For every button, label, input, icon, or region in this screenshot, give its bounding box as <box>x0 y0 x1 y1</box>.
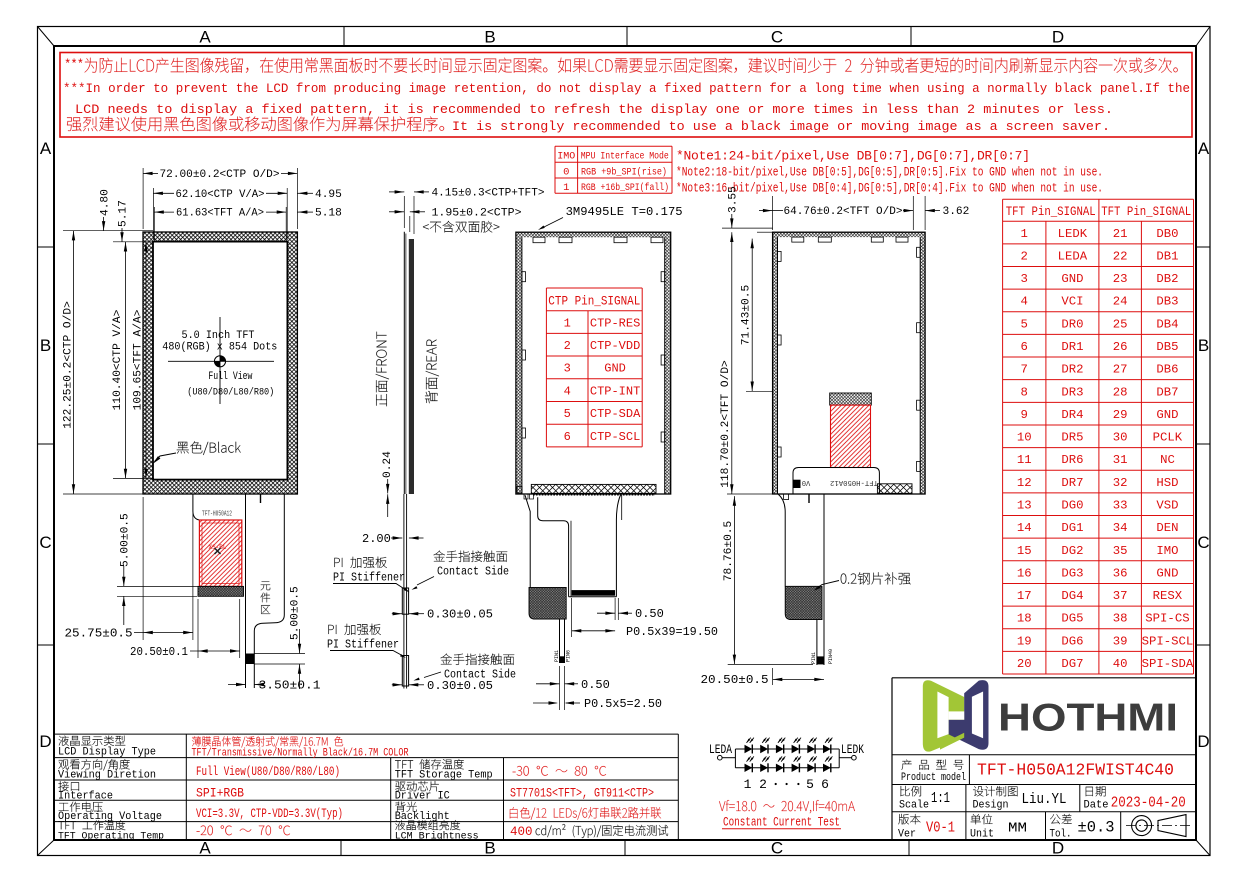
svg-text:1.95±0.2<CTP>: 1.95±0.2<CTP> <box>432 207 522 219</box>
svg-text:ST7701S<TFT>, GT911<CTP>: ST7701S<TFT>, GT911<CTP> <box>510 787 654 801</box>
svg-text:PIN1: PIN1 <box>811 652 817 664</box>
svg-text:16: 16 <box>1017 566 1032 580</box>
svg-text:A: A <box>1198 139 1210 158</box>
svg-text:Constant Current Test: Constant Current Test <box>723 815 840 830</box>
svg-text:3M9495LE T=0.175: 3M9495LE T=0.175 <box>566 205 683 219</box>
svg-text:61.63<TFT A/A>: 61.63<TFT A/A> <box>176 208 264 220</box>
svg-text:A: A <box>199 839 211 858</box>
svg-text:RGB +9b_SPI(rise): RGB +9b_SPI(rise) <box>581 167 667 179</box>
svg-text:DB6: DB6 <box>1156 363 1178 377</box>
svg-text:Full View: Full View <box>208 371 252 383</box>
svg-text:*Note3:16-bit/pixel,Use DB[0:4: *Note3:16-bit/pixel,Use DB[0:4],DG[0:5],… <box>676 181 1103 196</box>
svg-text:30: 30 <box>1113 431 1128 445</box>
svg-text:20.50±0.1: 20.50±0.1 <box>130 645 188 659</box>
svg-text:2: 2 <box>759 777 767 792</box>
svg-text:6: 6 <box>564 430 571 444</box>
svg-text:0: 0 <box>563 167 569 179</box>
svg-text:1: 1 <box>1021 227 1028 241</box>
svg-text:1: 1 <box>744 777 752 792</box>
svg-text:33: 33 <box>1113 499 1128 513</box>
svg-text:LEDK: LEDK <box>841 742 864 757</box>
svg-text:Interface: Interface <box>58 791 113 803</box>
svg-text:Contact Side: Contact Side <box>437 566 509 579</box>
svg-text:Driver IC: Driver IC <box>395 791 450 803</box>
svg-text:PI Stiffener: PI Stiffener <box>327 639 399 652</box>
svg-text:5.00±0.5: 5.00±0.5 <box>120 513 132 567</box>
svg-text:CTP-INT: CTP-INT <box>590 384 640 398</box>
svg-text:122.25±0.2<CTP O/D>: 122.25±0.2<CTP O/D> <box>63 301 75 429</box>
svg-text:DR7: DR7 <box>1061 476 1083 490</box>
svg-text:40: 40 <box>1113 657 1128 671</box>
svg-text:GND: GND <box>1061 272 1083 286</box>
svg-text:DEN: DEN <box>1156 521 1178 535</box>
svg-text:5: 5 <box>564 407 571 421</box>
svg-text:Unit: Unit <box>970 829 994 841</box>
svg-text:LEDA: LEDA <box>709 742 732 757</box>
svg-text:DB7: DB7 <box>1156 385 1178 399</box>
svg-text:0.30±0.05: 0.30±0.05 <box>427 609 493 622</box>
svg-text:Liu.YL: Liu.YL <box>1022 791 1067 808</box>
svg-text:SPI-CS: SPI-CS <box>1145 612 1189 626</box>
svg-text:PIN1: PIN1 <box>554 650 560 662</box>
svg-text:TFT-H050A12: TFT-H050A12 <box>202 511 232 519</box>
svg-text:19: 19 <box>1017 634 1032 648</box>
svg-text:Date: Date <box>1084 800 1109 812</box>
svg-text:DR0: DR0 <box>1061 317 1083 331</box>
svg-text:400: 400 <box>510 825 533 839</box>
svg-text:2.00: 2.00 <box>362 532 391 546</box>
svg-text:LCM Brightness: LCM Brightness <box>395 830 479 842</box>
svg-text:TFT-H050A12: TFT-H050A12 <box>830 478 878 486</box>
svg-text:3: 3 <box>1021 272 1028 286</box>
svg-text:GND: GND <box>604 362 626 376</box>
svg-text:0.50: 0.50 <box>581 678 610 692</box>
svg-text:8: 8 <box>1021 385 1028 399</box>
svg-text:Product model: Product model <box>901 772 966 784</box>
svg-text:Scale: Scale <box>899 800 929 812</box>
svg-text:GND: GND <box>1156 566 1178 580</box>
svg-text:DG7: DG7 <box>1061 657 1083 671</box>
svg-text:IMO: IMO <box>1156 544 1178 558</box>
svg-text:38: 38 <box>1113 612 1128 626</box>
svg-text:TFT Pin_SIGNAL: TFT Pin_SIGNAL <box>1101 205 1191 219</box>
svg-text:CTP-VDD: CTP-VDD <box>590 339 640 353</box>
svg-text:36: 36 <box>1113 566 1128 580</box>
svg-text:DG5: DG5 <box>1061 612 1083 626</box>
svg-text:109.65<TFT A/A>: 109.65<TFT A/A> <box>133 309 145 410</box>
svg-text:14: 14 <box>1017 521 1032 535</box>
svg-text:LCD needs to display a fixed p: LCD needs to display a fixed pattern, it… <box>75 102 1113 117</box>
svg-text:37: 37 <box>1113 589 1128 603</box>
svg-text:VCI: VCI <box>1061 295 1083 309</box>
svg-text:CTP-SCL: CTP-SCL <box>590 430 640 444</box>
svg-text:25.75±0.5: 25.75±0.5 <box>65 627 133 641</box>
svg-text:DR5: DR5 <box>1061 431 1083 445</box>
svg-text:C: C <box>1197 533 1209 552</box>
svg-text:5: 5 <box>1021 317 1028 331</box>
svg-text:Design: Design <box>973 800 1009 812</box>
svg-text:Tol.: Tol. <box>1050 829 1072 841</box>
svg-text:HSD: HSD <box>1156 476 1178 490</box>
svg-text:11: 11 <box>1017 453 1032 467</box>
svg-text:6: 6 <box>1021 340 1028 354</box>
svg-text:28: 28 <box>1113 385 1128 399</box>
svg-text:1: 1 <box>563 182 569 194</box>
svg-text:MM: MM <box>1008 821 1027 837</box>
svg-text:0.50: 0.50 <box>635 607 664 621</box>
svg-text:Full View(U80/D80/R80/L80): Full View(U80/D80/R80/L80) <box>196 764 340 779</box>
svg-text:*Note2:18-bit/pixel,Use DB[0:5: *Note2:18-bit/pixel,Use DB[0:5],DG[0:5],… <box>676 165 1103 180</box>
svg-text:DG3: DG3 <box>1061 566 1083 580</box>
svg-text:78.76±0.5: 78.76±0.5 <box>723 521 735 581</box>
svg-text:1:1: 1:1 <box>931 790 950 807</box>
svg-text:*Note1:24-bit/pixel,Use DB[0:7: *Note1:24-bit/pixel,Use DB[0:7],DG[0:7],… <box>676 149 1030 164</box>
svg-text:0.30±0.05: 0.30±0.05 <box>427 680 493 693</box>
svg-text:CTP-RES: CTP-RES <box>590 316 640 330</box>
svg-text:TFT-H050A12FWIST4C40: TFT-H050A12FWIST4C40 <box>977 761 1174 780</box>
svg-text:(U80/D80/L80/R80): (U80/D80/L80/R80) <box>187 386 274 398</box>
svg-text:31: 31 <box>1113 453 1128 467</box>
svg-text:DG2: DG2 <box>1061 544 1083 558</box>
svg-text:DB4: DB4 <box>1156 317 1178 331</box>
svg-text:V0: V0 <box>802 478 810 486</box>
svg-text:2: 2 <box>1021 249 1028 263</box>
svg-text:39: 39 <box>1113 634 1128 648</box>
svg-text:B: B <box>1198 336 1209 355</box>
svg-text:15: 15 <box>1017 544 1032 558</box>
svg-text:17: 17 <box>1017 589 1032 603</box>
svg-text:27: 27 <box>1113 363 1128 377</box>
svg-text:34: 34 <box>1113 521 1128 535</box>
svg-text:5: 5 <box>806 777 814 792</box>
svg-text:4.95: 4.95 <box>315 189 342 201</box>
svg-text:DB3: DB3 <box>1156 295 1178 309</box>
svg-text:CTP-SDA: CTP-SDA <box>590 407 641 421</box>
svg-text:D: D <box>1197 732 1209 751</box>
svg-text:3: 3 <box>564 362 571 376</box>
svg-text:±0.3: ±0.3 <box>1078 819 1115 837</box>
svg-text:23: 23 <box>1113 272 1128 286</box>
svg-text:5.17: 5.17 <box>118 200 130 227</box>
svg-text:V0-1: V0-1 <box>926 820 955 837</box>
svg-text:LEDK: LEDK <box>1058 227 1088 241</box>
svg-text:DB0: DB0 <box>1156 227 1178 241</box>
svg-text:DR4: DR4 <box>1061 408 1083 422</box>
svg-text:TFT Operating Temp: TFT Operating Temp <box>58 830 164 842</box>
svg-text:72.00±0.2<CTP O/D>: 72.00±0.2<CTP O/D> <box>160 169 280 181</box>
svg-text:24: 24 <box>1113 295 1128 309</box>
svg-text:3.50±0.1: 3.50±0.1 <box>259 679 321 693</box>
svg-text:SPI+RGB: SPI+RGB <box>196 787 244 801</box>
svg-text:CTP Pin_SIGNAL: CTP Pin_SIGNAL <box>548 295 640 309</box>
svg-text:10: 10 <box>1017 431 1032 445</box>
svg-text:71.43±0.5: 71.43±0.5 <box>741 285 753 345</box>
svg-text:6: 6 <box>821 777 829 792</box>
svg-text:D: D <box>1052 28 1064 47</box>
svg-text:DR1: DR1 <box>1061 340 1083 354</box>
svg-text:2: 2 <box>564 339 571 353</box>
svg-text:7: 7 <box>1021 363 1028 377</box>
svg-text:DB2: DB2 <box>1156 272 1178 286</box>
svg-text:12: 12 <box>1017 476 1032 490</box>
svg-text:118.70±0.2<TFT O/D>: 118.70±0.2<TFT O/D> <box>720 360 732 488</box>
svg-text:110.40<CTP V/A>: 110.40<CTP V/A> <box>112 309 124 410</box>
svg-text:Viewing Diretion: Viewing Diretion <box>58 770 156 782</box>
svg-text:3.62: 3.62 <box>943 206 970 218</box>
svg-text:DG0: DG0 <box>1061 499 1083 513</box>
svg-text:35: 35 <box>1113 544 1128 558</box>
svg-text:IMO: IMO <box>557 151 575 163</box>
svg-text:0.24: 0.24 <box>382 451 394 478</box>
svg-text:PCLK: PCLK <box>1153 431 1183 445</box>
svg-text:4.15±0.3<CTP+TFT>: 4.15±0.3<CTP+TFT> <box>432 188 545 200</box>
svg-text:RESX: RESX <box>1153 589 1183 603</box>
svg-text:25: 25 <box>1113 317 1128 331</box>
svg-text:5.00±0.5: 5.00±0.5 <box>290 586 302 640</box>
svg-text:RGB +16b_SPI(fall): RGB +16b_SPI(fall) <box>581 182 669 194</box>
svg-text:20.50±0.5: 20.50±0.5 <box>701 673 769 687</box>
svg-text:A: A <box>40 139 52 158</box>
svg-text:GND: GND <box>1156 408 1178 422</box>
svg-text:D: D <box>39 732 51 751</box>
svg-text:D: D <box>1052 839 1064 858</box>
svg-text:18: 18 <box>1017 612 1032 626</box>
svg-text:13: 13 <box>1017 499 1032 513</box>
svg-text:B: B <box>484 839 495 858</box>
svg-text:P0.5x5=2.50: P0.5x5=2.50 <box>584 697 662 711</box>
svg-text:MPU Interface Mode: MPU Interface Mode <box>581 151 669 163</box>
svg-text:64.76±0.2<TFT O/D>: 64.76±0.2<TFT O/D> <box>784 206 903 218</box>
svg-text:26: 26 <box>1113 340 1128 354</box>
svg-text:PIN6: PIN6 <box>565 650 571 662</box>
svg-text:C: C <box>39 533 51 552</box>
svg-text:VCI=3.3V, CTP-VDD=3.3V(Typ): VCI=3.3V, CTP-VDD=3.3V(Typ) <box>196 807 343 821</box>
svg-text:DB1: DB1 <box>1156 249 1178 263</box>
svg-text:B: B <box>484 28 495 47</box>
svg-text:PIN40: PIN40 <box>828 649 834 664</box>
svg-text:SPI-SCL: SPI-SCL <box>1142 634 1194 648</box>
svg-text:1: 1 <box>564 316 571 330</box>
svg-text:It is strongly recommended to: It is strongly recommended to use a blac… <box>452 119 1110 134</box>
svg-text:C: C <box>771 839 783 858</box>
svg-text:DR3: DR3 <box>1061 385 1083 399</box>
svg-text:LCD Display Type: LCD Display Type <box>58 746 156 758</box>
svg-text:HOTHMI: HOTHMI <box>998 697 1178 740</box>
svg-text:4: 4 <box>564 384 571 398</box>
svg-text:TFT/Transmissive/Normally Blac: TFT/Transmissive/Normally Black/16.7M CO… <box>192 748 409 760</box>
svg-text:62.10<CTP V/A>: 62.10<CTP V/A> <box>176 189 265 201</box>
svg-text:9: 9 <box>1021 408 1028 422</box>
svg-text:DG1: DG1 <box>1061 521 1083 535</box>
svg-text:20: 20 <box>1017 657 1032 671</box>
svg-text:4: 4 <box>1021 295 1028 309</box>
svg-text:C: C <box>771 28 783 47</box>
svg-text:22: 22 <box>1113 249 1128 263</box>
svg-text:TFT Storage Temp: TFT Storage Temp <box>395 770 493 782</box>
svg-text:DR6: DR6 <box>1061 453 1083 467</box>
svg-text:LEDA: LEDA <box>1058 249 1088 263</box>
svg-text:21: 21 <box>1113 227 1128 241</box>
svg-text:5.18: 5.18 <box>315 208 342 220</box>
svg-text:2023-04-20: 2023-04-20 <box>1111 795 1186 812</box>
svg-text:***In order to prevent the LCD: ***In order to prevent the LCD from prod… <box>63 81 1190 96</box>
svg-text:P0.5x39=19.50: P0.5x39=19.50 <box>626 625 718 639</box>
svg-text:SPI-SDA: SPI-SDA <box>1142 657 1194 671</box>
svg-text:32: 32 <box>1113 476 1128 490</box>
svg-text:TFT Pin_SIGNAL: TFT Pin_SIGNAL <box>1006 205 1096 219</box>
svg-text:B: B <box>40 336 51 355</box>
svg-text:4.80: 4.80 <box>99 189 111 216</box>
svg-text:DB5: DB5 <box>1156 340 1178 354</box>
svg-text:NC: NC <box>1160 453 1175 467</box>
svg-text:DR2: DR2 <box>1061 363 1083 377</box>
svg-text:DG4: DG4 <box>1061 589 1083 603</box>
svg-text:VSD: VSD <box>1156 499 1178 513</box>
svg-text:A: A <box>199 28 211 47</box>
svg-text:PI Stiffener: PI Stiffener <box>333 572 405 585</box>
svg-text:Ver: Ver <box>898 829 916 841</box>
svg-text:DG6: DG6 <box>1061 634 1083 648</box>
svg-text:29: 29 <box>1113 408 1128 422</box>
svg-text:3.55: 3.55 <box>727 186 739 213</box>
